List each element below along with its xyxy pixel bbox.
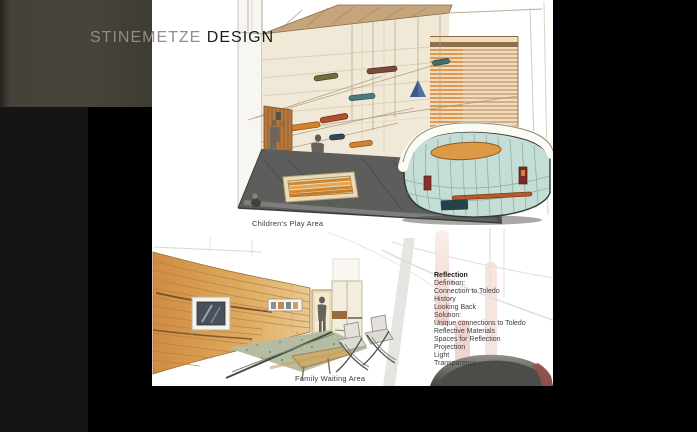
list-item: Light — [434, 352, 526, 360]
caption-childrens-play-area: Children's Play Area — [252, 219, 323, 228]
caption-family-waiting-area: Family Waiting Area — [295, 374, 365, 383]
display-niche — [268, 299, 302, 311]
list-item: History — [434, 296, 526, 304]
list-item: Spaces for Reflection — [434, 336, 526, 344]
tv-screen — [192, 297, 230, 330]
list-item: Reflective Materials — [434, 328, 526, 336]
list-item: Solution: — [434, 312, 526, 320]
list-item: Projection — [434, 344, 526, 352]
brand-title: STINEMETZE DESIGN — [90, 30, 274, 46]
family-waiting-area-sketch — [153, 237, 396, 380]
dark-side-strip — [0, 107, 88, 432]
striped-rug — [283, 172, 358, 202]
screen: { "brand": { "muted": "STINEMETZE", "str… — [0, 0, 697, 432]
list-item: Looking Back — [434, 304, 526, 312]
brand-title-muted: STINEMETZE — [90, 29, 201, 46]
list-item: Definition: — [434, 280, 526, 288]
list-item: Connection to Toledo — [434, 288, 526, 296]
list-item: Transparency — [434, 360, 526, 368]
list-item: Unique connections to Toledo — [434, 320, 526, 328]
reflection-concept-list: Reflection Definition: Connection to Tol… — [434, 272, 526, 368]
olive-side-panel — [0, 0, 152, 107]
presentation-slide: Children's Play Area Family Waiting Area… — [152, 0, 553, 386]
list-heading: Reflection — [434, 272, 526, 280]
brand-title-strong: DESIGN — [207, 29, 274, 46]
reception-desk — [402, 123, 553, 225]
children-play-area-sketch — [238, 0, 553, 225]
